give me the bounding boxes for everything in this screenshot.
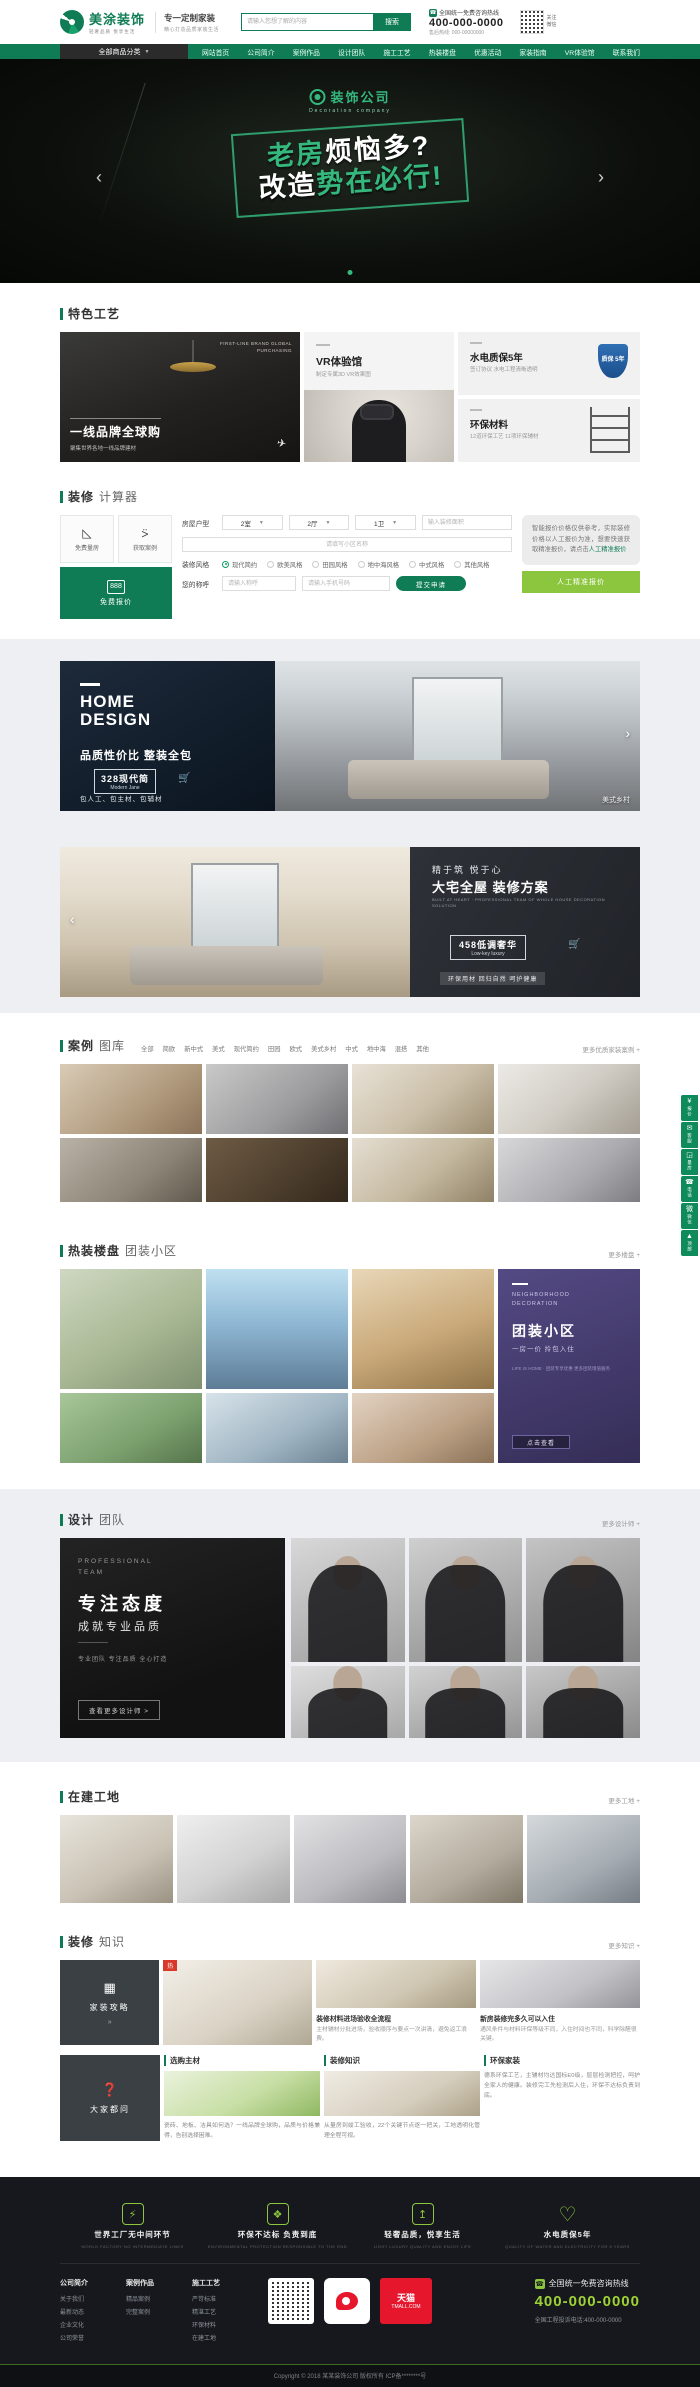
case-tab-european[interactable]: 欧式 [289,1044,302,1053]
brand-sub: 聚集世界各地一线品牌建材 [70,444,136,452]
quote-tip: 智能报价价格仅供参考，实际装修价格以人工报价为准，想要快速获取精准报价，请点击人… [522,515,640,565]
designers-promo-desc: 专业团队 专注品质 全心打造 [78,1654,167,1663]
main-nav: 全部商品分类 ▼ 网站首页 公司简介 案例作品 设计团队 施工工艺 热装楼盘 优… [0,44,700,59]
sidebar-service-button[interactable]: ✉客服 [681,1122,698,1148]
designer-photo[interactable] [526,1538,640,1662]
sidebar-phone-button[interactable]: ☎电话 [681,1176,698,1202]
question-icon: ❓ [102,2082,118,2098]
promo1-photo: 美式乡村 › [275,661,640,811]
radio-icon [409,561,416,568]
nav-item-guide[interactable]: 家装指南 [519,47,546,57]
area-input[interactable] [422,515,512,530]
portrait-body [308,1565,388,1662]
case-tab-modern[interactable]: 现代简约 [234,1044,259,1053]
promo2-photo: ‹ [60,847,410,997]
sidebar-quote-button[interactable]: ¥报价 [681,1095,698,1121]
qr-code [520,10,544,34]
footer-link[interactable]: 在建工地 [192,2333,244,2342]
select-arrow-icon: ▼ [392,520,397,526]
knowledge-photo[interactable]: 热 [163,1960,312,2045]
arrow-up-icon: ▲ [686,1233,693,1240]
knowledge-article[interactable]: 新房装修完多久可以入住 通风条件与材料环保等级不同，入住时间也不同，科学除醛很关… [480,1960,640,2045]
shield-badge-icon: 质保 5年 [598,344,628,378]
title-bar [60,1514,63,1526]
estate-photo[interactable] [60,1269,202,1389]
quick-sidebar: ¥报价 ✉客服 ◲量房 ☎电话 微微信 ▲顶部 [681,1095,698,1256]
sites-section: 在建工地 更多工地 + [60,1762,640,1903]
footer-feature-quality: ↥ 轻奢品质，悦享生活 LIGHT LUXURY QUALITY AND ENJ… [350,2197,495,2263]
warranty-sub: 签订协议 水电工程清晰透明 [470,365,538,373]
free-quote-button[interactable]: 888 免费报价 [60,567,172,619]
estate-photo[interactable] [206,1269,348,1389]
cases-title-2: 图库 [99,1037,125,1054]
window-decor [414,679,502,762]
knowledge-more-link[interactable]: 更多知识 + [608,1940,640,1950]
case-photo[interactable] [206,1138,348,1202]
promo1-title: 品质性价比 整装全包 [80,747,192,763]
after-sale-number: 售后热线: 000-00000000 [429,29,504,36]
footer-qr-code [268,2278,314,2324]
upload-icon: ↥ [412,2203,434,2225]
banner-logo-icon [309,89,325,105]
footer-link[interactable]: 精湛工艺 [192,2307,244,2316]
features-section: 特色工艺 FIRST-LINE BRAND GLOBALPURCHASING 一… [60,283,640,462]
page: 美涂装饰 轻奢品质 悦享生活 专一定制家装 精心打造品质家装生活 搜索 ☎ 全国… [0,0,700,2387]
phone-icon: ☎ [535,2279,545,2289]
title-bar [60,1040,63,1052]
nav-item-estates[interactable]: 热装楼盘 [429,47,456,57]
warranty-title: 水电质保5年 [470,350,523,364]
case-photo[interactable] [352,1138,494,1202]
footer-link[interactable]: 企业文化 [60,2320,112,2329]
search-bar: 搜索 [241,13,411,31]
radio-icon [222,561,229,568]
calc-title-1: 装修 [68,488,94,505]
cases-more-link[interactable]: 更多优质家装案例 + [582,1044,640,1054]
article-photo [316,1960,476,2008]
sidebar-backtop-button[interactable]: ▲顶部 [681,1230,698,1256]
cases-title-1: 案例 [68,1037,94,1054]
hotline: ☎ 全国统一免费咨询热线 400-000-0000 售后热线: 000-0000… [429,8,504,36]
group-card-view-button[interactable]: 点击查看 [512,1435,570,1449]
hot-tag: 热 [163,1960,177,1971]
free-measure-button[interactable]: ◺ 免费量房 [60,515,114,563]
cases-section: 案例 图库 全部 简欧 新中式 美式 现代简约 田园 欧式 美式乡村 中式 地中… [60,1013,640,1202]
category-button[interactable]: 全部商品分类 ▼ [60,44,188,59]
vr-sub: 制定专属3D VR效果图 [316,370,371,378]
banner-crack-decor [95,83,145,235]
site-photo[interactable] [294,1815,407,1903]
knowledge-section: 装修 知识 更多知识 + ▦ 家装攻略 » 热 装修材料进场验收全流程 主材辅材… [60,1903,640,2177]
feature-brand-card[interactable]: FIRST-LINE BRAND GLOBALPURCHASING 一线品牌全球… [60,332,300,462]
banner-line1-green: 老房 [266,138,326,172]
designers-promo-sub: 成就专业品质 [78,1618,162,1634]
group-decoration-card[interactable]: NEIGHBORHOODDECORATION 团装小区 一房一价 拎包入住 LI… [498,1269,640,1463]
footer-link[interactable]: 最新动态 [60,2307,112,2316]
radio-icon [267,561,274,568]
case-tab-all[interactable]: 全部 [141,1044,154,1053]
designer-photo[interactable] [291,1538,405,1662]
group-card-title: 团装小区 [512,1321,576,1341]
ruler-icon: ◺ [82,527,91,539]
community-input[interactable] [182,537,512,552]
sidebar-wechat-button[interactable]: 微微信 [681,1203,698,1229]
logo[interactable]: 美涂装饰 轻奢品质 悦享生活 [60,9,145,35]
title-bar [60,1791,63,1803]
knowledge-tab-qa[interactable]: ❓ 大家都问 [60,2055,160,2141]
case-tab-mediterranean[interactable]: 地中海 [367,1044,386,1053]
promo1-corner-label: 美式乡村 [602,795,630,805]
promo1-note: 包人工、包主材、包辅材 [80,793,163,803]
estate-photo[interactable] [60,1393,202,1463]
get-case-button[interactable]: ⍩ 获取案例 [118,515,172,563]
phone-icon: ☎ [429,9,437,17]
style-radio-modern[interactable]: 现代简约 [222,560,257,569]
logo-icon [60,10,84,34]
halls-select[interactable]: 2厅▼ [289,515,350,530]
select-arrow-icon: ▼ [259,520,264,526]
estates-title-1: 热装楼盘 [68,1242,120,1259]
dash-decor [512,1283,528,1285]
style-radio-other[interactable]: 其他风格 [454,560,489,569]
promo-next-arrow[interactable]: › [625,725,630,741]
title-bar [60,308,63,320]
title-bar [60,1936,63,1948]
promo1-badge: 328现代简 Modern Jane [94,769,156,794]
footer-col-cases: 案例作品 精品案例 完整案例 [126,2278,178,2320]
case-tab-pastoral[interactable]: 田园 [268,1044,281,1053]
manual-quote-button[interactable]: 人工精准报价 [522,571,640,593]
footer: ⚡ 世界工厂无中间环节 WORLD FACTORY NO INTERMEDIAT… [0,2177,700,2387]
dash-decor [80,683,100,686]
hotline-number: 400-000-0000 [429,17,504,29]
rooms-select[interactable]: 2室▼ [222,515,283,530]
tmall-icon[interactable]: 天猫 TMALL.COM [380,2278,432,2324]
case-tab-american[interactable]: 美式 [212,1044,225,1053]
dash-decor [470,409,482,411]
select-arrow-icon: ▼ [326,520,331,526]
case-tab-other[interactable]: 其他 [416,1044,429,1053]
promo-banner-whole-house[interactable]: ‹ 精于筑 悦于心 大宅全屋 装修方案 BUILT AT HEART · PRO… [60,847,640,997]
price-icon: ¥ [688,1098,692,1105]
estates-more-link[interactable]: 更多楼盘 + [608,1249,640,1259]
qa-text: 从量房到竣工验收，22个关键节点逐一把关，工地透明化管理全程可视。 [324,2121,480,2141]
promo2-tag: 环保用材 回归自然 呵护健康 [440,972,545,985]
qa-header: 选购主材 [164,2055,320,2066]
hotline-label: 全国统一免费咨询热线 [439,8,499,17]
eco-sub: 12道环保工艺 11项环保辅材 [470,432,538,440]
nav-item-about[interactable]: 公司简介 [247,47,274,57]
arrow-right-icon: » [108,2019,112,2026]
portrait-body [543,1688,623,1738]
article-title: 装修材料进场验收全流程 [316,2013,476,2023]
article-desc: 主材辅材分批进场，验收顺序与要点一次讲清，避免返工浪费。 [316,2026,476,2045]
designer-photo[interactable] [409,1538,523,1662]
estate-photo[interactable] [352,1269,494,1389]
weibo-icon[interactable] [324,2278,370,2324]
features-title: 特色工艺 [68,305,120,322]
banner-logo-text: 装饰公司 [330,87,390,106]
promo-banner-full-package[interactable]: HOMEDESIGN 品质性价比 整装全包 328现代简 Modern Jane… [60,661,640,811]
footer-link[interactable]: 关于我们 [60,2294,112,2303]
banner-headline: 老房烦恼多? 改造势在必行! [231,118,469,218]
qr-label: 关注微信 [547,15,557,29]
footer-link[interactable]: 严苛标准 [192,2294,244,2303]
designers-title-1: 设计 [68,1511,94,1528]
article-photo [480,1960,640,2008]
radio-icon [358,561,365,568]
vr-photo [304,390,454,462]
ruler-icon: ◲ [686,1152,693,1159]
designers-title-2: 团队 [99,1511,125,1528]
site-name: 美涂装饰 [89,9,145,28]
nav-item-promotions[interactable]: 优惠活动 [474,47,501,57]
sidebar-measure-button[interactable]: ◲量房 [681,1149,698,1175]
banner-dot-indicator[interactable] [348,270,353,275]
nav-item-designers[interactable]: 设计团队 [338,47,365,57]
name-label: 您的称呼 [182,579,216,589]
tagline-main: 专一定制家装 [164,12,219,24]
hero-banner[interactable]: 装饰公司 Decoration company 老房烦恼多? 改造势在必行! ‹… [0,59,700,283]
tagline-sub: 精心打造品质家装生活 [164,26,219,33]
footer-feature-warranty: ♡ 水电质保5年 QUALITY OF WATER AND ELECTRICIT… [495,2197,640,2263]
nav-item-home[interactable]: 网站首页 [202,47,229,57]
designers-more-button[interactable]: 查看更多设计师 > [78,1700,160,1720]
site-photo[interactable] [177,1815,290,1903]
house-type-label: 房屋户型 [182,518,216,528]
divider [60,2263,640,2264]
chevron-down-icon: ▼ [145,49,150,55]
grid-icon: ▦ [104,1980,116,1996]
banner-line2-white: 改造 [258,169,318,203]
group-card-desc: LIFE IS HOME · 团装专享优惠 更多团装增值服务 [512,1365,622,1373]
style-radio-chinese[interactable]: 中式风格 [409,560,444,569]
case-photo[interactable] [352,1064,494,1134]
submit-button[interactable]: 提交申请 [396,576,466,591]
sites-more-link[interactable]: 更多工地 + [608,1795,640,1805]
nav-item-cases[interactable]: 案例作品 [293,47,320,57]
nav-item-contact[interactable]: 联系我们 [613,47,640,57]
phone-icon: ☎ [685,1179,694,1186]
qa-header: 装修知识 [324,2055,480,2066]
message-icon: ✉ [687,1125,693,1132]
qa-text: 瓷砖、地板、洁具如何选？一线品牌全球购，品质与价格兼得，告别选择困难。 [164,2121,320,2141]
footer-feature-factory: ⚡ 世界工厂无中间环节 WORLD FACTORY NO INTERMEDIAT… [60,2197,205,2263]
case-photo[interactable] [206,1064,348,1134]
promo2-line1: 精于筑 悦于心 [432,863,503,876]
banner-next-arrow[interactable]: › [598,167,604,188]
eco-title: 环保材料 [470,417,508,431]
radio-icon [454,561,461,568]
sofa-decor [130,946,323,985]
divider [78,1642,108,1643]
phone-input[interactable] [302,576,390,591]
sites-title: 在建工地 [68,1788,120,1805]
cart-icon: 🛒 [568,939,580,950]
style-label: 装修风格 [182,559,216,569]
qa-header: 环保家装 [484,2055,640,2066]
calculator-icon: 888 [107,580,125,594]
topbar: 美涂装饰 轻奢品质 悦享生活 专一定制家装 精心打造品质家装生活 搜索 ☎ 全国… [0,0,700,44]
quote-form: 房屋户型 2室▼ 2厅▼ 1卫▼ 装修风格 现代简约 欧美风格 田园风格 地中海… [182,515,512,619]
style-radio-pastoral[interactable]: 田园风格 [312,560,347,569]
case-tab-mix[interactable]: 混搭 [395,1044,408,1053]
nav-item-craft[interactable]: 施工工艺 [383,47,410,57]
estates-section: 热装楼盘 团装小区 更多楼盘 + NEIGHBORHOODDECORATION … [60,1202,640,1463]
footer-hotline: ☎全国统一免费咨询热线 400-000-0000 全国工程投诉电话:400-00… [535,2278,640,2324]
title-bar [60,491,63,503]
style-radio-mediterranean[interactable]: 地中海风格 [358,560,399,569]
footer-col-craft: 施工工艺 严苛标准 精湛工艺 环保材料 在建工地 [192,2278,244,2346]
radio-icon [312,561,319,568]
tagline: 专一定制家装 精心打造品质家装生活 [155,12,219,33]
qa-column-eco[interactable]: 环保家装 德系环保工艺，主辅材均达国标E0级，层层检测把控，呵护全家人的健康。装… [484,2055,640,2141]
qa-text: 德系环保工艺，主辅材均达国标E0级，层层检测把控，呵护全家人的健康。装修完工先检… [484,2071,640,2101]
case-tab-jianou[interactable]: 简欧 [163,1044,176,1053]
calc-title-2: 计算器 [99,488,138,505]
style-radio-western[interactable]: 欧美风格 [267,560,302,569]
designers-section: 设计 团队 更多设计师 + PROFESSIONALTEAM 专注态度 成就专业… [0,1489,700,1762]
window-decor [193,865,277,948]
portrait-body [543,1565,623,1662]
designer-photo[interactable] [526,1666,640,1738]
article-title: 新房装修完多久可以入住 [480,2013,640,2023]
calculator-section: 装修 计算器 ◺ 免费量房 ⍩ 获取案例 888 免费报价 [60,462,640,619]
promo2-line2: 大宅全屋 装修方案 [432,877,549,896]
estate-photo[interactable] [352,1393,494,1463]
footer-complaint-number: 全国工程投诉电话:400-000-0000 [535,2315,640,2324]
case-photo[interactable] [60,1064,202,1134]
dash-decor [470,342,482,344]
portrait-body [426,1688,506,1738]
estates-title-2: 团装小区 [125,1242,177,1259]
vr-title: VR体验馆 [316,354,362,369]
footer-link[interactable]: 精品案例 [126,2294,178,2303]
designers-more-link[interactable]: 更多设计师 + [602,1518,640,1528]
designers-promo-title: 专注态度 [78,1590,166,1616]
qa-photo [324,2071,480,2116]
footer-col-about: 公司简介 关于我们 最新动态 企业文化 公司荣誉 [60,2278,112,2346]
feature-vr-card[interactable]: VR体验馆 制定专属3D VR效果图 [304,332,454,462]
brand-title: 一线品牌全球购 [70,418,161,440]
case-photo[interactable] [60,1138,202,1202]
copyright: Copyright © 2018 某某装饰公司 版权所有 ICP备*******… [0,2364,700,2387]
vr-headset-icon [362,406,392,418]
cart-icon: 🛒 [178,773,190,784]
site-photo[interactable] [527,1815,640,1903]
plane-icon: ✈ [276,436,288,451]
designers-promo-card[interactable]: PROFESSIONALTEAM 专注态度 成就专业品质 专业团队 专注品质 全… [60,1538,285,1738]
site-photo[interactable] [410,1815,523,1903]
estate-photo[interactable] [206,1393,348,1463]
lamp-decor [170,362,216,372]
search-input[interactable] [241,13,373,31]
banner-prev-arrow[interactable]: ‹ [96,167,102,188]
promo-zone: HOMEDESIGN 品质性价比 整装全包 328现代简 Modern Jane… [0,639,700,1013]
bag-icon: ⍩ [141,527,148,539]
material-rack-icon [590,407,630,453]
title-bar [60,1245,63,1257]
site-photo[interactable] [60,1815,173,1903]
knowledge-tab-guide[interactable]: ▦ 家装攻略 » [60,1960,159,2045]
designer-photo[interactable] [291,1666,405,1738]
sofa-decor [348,760,549,799]
qa-photo [164,2071,320,2116]
case-tab-new-chinese[interactable]: 新中式 [184,1044,203,1053]
promo2-line3: BUILT AT HEART · PROFESSIONAL TEAM OF WH… [432,897,612,910]
tag-icon: ❖ [267,2203,289,2225]
footer-link[interactable]: 环保材料 [192,2320,244,2329]
promo2-badge: 458低调奢华 Low-key luxury [450,935,526,960]
search-button[interactable]: 搜索 [373,13,411,31]
case-photo[interactable] [498,1138,640,1202]
knowledge-article[interactable]: 装修材料进场验收全流程 主材辅材分批进场，验收顺序与要点一次讲清，避免返工浪费。 [316,1960,476,2045]
article-desc: 通风条件与材料环保等级不同，入住时间也不同，科学除醛很关键。 [480,2026,640,2045]
footer-link[interactable]: 公司荣誉 [60,2333,112,2342]
case-tab-chinese[interactable]: 中式 [345,1044,358,1053]
qa-column-knowledge[interactable]: 装修知识 从量房到竣工验收，22个关键节点逐一把关，工地透明化管理全程可视。 [324,2055,480,2141]
knowledge-title-2: 知识 [99,1933,125,1950]
case-photo[interactable] [498,1064,640,1134]
lightning-icon: ⚡ [122,2203,144,2225]
heart-icon: ♡ [557,2203,579,2225]
footer-feature-eco: ❖ 环保不达标 负责到底 ENVIRONMENTAL PROTECTION RE… [205,2197,350,2263]
designer-photo[interactable] [409,1666,523,1738]
banner-logo-en: Decoration company [234,108,467,114]
knowledge-title-1: 装修 [68,1933,94,1950]
group-card-sub: 一房一价 拎包入住 [512,1343,575,1353]
case-tab-country[interactable]: 美式乡村 [311,1044,336,1053]
qa-column-materials[interactable]: 选购主材 瓷砖、地板、洁具如何选？一线品牌全球购，品质与价格兼得，告别选择困难。 [164,2055,320,2141]
site-slogan: 轻奢品质 悦享生活 [89,29,145,35]
portrait-body [426,1565,506,1662]
portrait-body [308,1688,388,1738]
feature-eco-card[interactable]: 环保材料 12道环保工艺 11项环保辅材 [458,399,640,462]
baths-select[interactable]: 1卫▼ [355,515,416,530]
name-input[interactable] [222,576,296,591]
nav-item-vr[interactable]: VR体验馆 [565,47,595,57]
promo-prev-arrow[interactable]: ‹ [70,911,75,927]
dash-decor [316,344,330,346]
wechat-icon: 微 [686,1206,693,1213]
feature-warranty-card[interactable]: 水电质保5年 签订协议 水电工程清晰透明 质保 5年 [458,332,640,395]
footer-link[interactable]: 完整案例 [126,2307,178,2316]
